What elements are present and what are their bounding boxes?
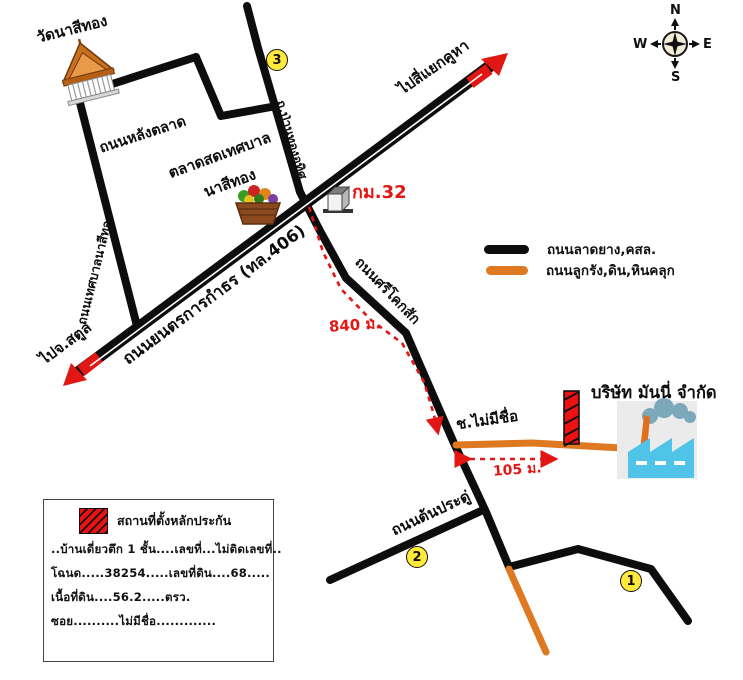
hand-drawn-location-map: วัดนาสีทอง ถนนหลังตลาด ถนนเทศบาลนาสีทอง … bbox=[0, 0, 743, 680]
collateral-marker-icon bbox=[564, 391, 579, 446]
collateral-legend-label: สถานที่ตั้งหลักประกัน bbox=[117, 511, 231, 531]
distance-840m-label: 840 ม. bbox=[329, 316, 382, 335]
collateral-legend-swatch bbox=[79, 508, 108, 534]
info-line-house: ..บ้านเดี่ยวตึก 1 ชั้น....เลขที่...ไม่ติ… bbox=[51, 541, 266, 559]
compass-w-label: W bbox=[633, 37, 647, 52]
collateral-info-box: สถานที่ตั้งหลักประกัน ..บ้านเดี่ยวตึก 1 … bbox=[43, 499, 274, 662]
road-bottom-right bbox=[509, 549, 688, 621]
legend-gravel-swatch bbox=[486, 266, 528, 275]
km32-label: กม.32 bbox=[352, 184, 407, 203]
compass-e-label: E bbox=[703, 37, 712, 52]
marker-point-2: 2 bbox=[406, 546, 428, 568]
marker-point-3: 3 bbox=[266, 49, 288, 71]
marker-point-1: 1 bbox=[620, 570, 642, 592]
compass-s-label: S bbox=[671, 70, 680, 85]
road-orange-south bbox=[509, 569, 546, 652]
compass-icon bbox=[650, 18, 700, 69]
legend-paved-row: ถนนลาดยาง,คสล. bbox=[484, 238, 656, 260]
compass-n-label: N bbox=[670, 3, 681, 18]
info-line-soi: ซอย..........ไม่มีชื่อ............. bbox=[51, 613, 266, 631]
company-label: บริษัท มันนี่ จำกัด bbox=[591, 384, 717, 401]
legend-gravel-row: ถนนลูกรัง,ดิน,หินคลุก bbox=[486, 259, 675, 281]
market-basket-icon bbox=[236, 185, 280, 224]
legend-paved-swatch bbox=[484, 245, 529, 254]
road-soi-no-name bbox=[456, 443, 622, 448]
info-line-area: เนื้อที่ดิน....56.2.....ตรว. bbox=[51, 589, 266, 607]
legend-gravel-label: ถนนลูกรัง,ดิน,หินคลุก bbox=[546, 259, 675, 281]
info-line-deed: โฉนด.....38254.....เลขที่ดิน....68..... bbox=[51, 565, 266, 583]
distance-105m-label: 105 ม. bbox=[493, 461, 543, 479]
temple-icon bbox=[54, 33, 119, 106]
legend-paved-label: ถนนลาดยาง,คสล. bbox=[547, 238, 656, 260]
factory-icon bbox=[617, 398, 697, 479]
